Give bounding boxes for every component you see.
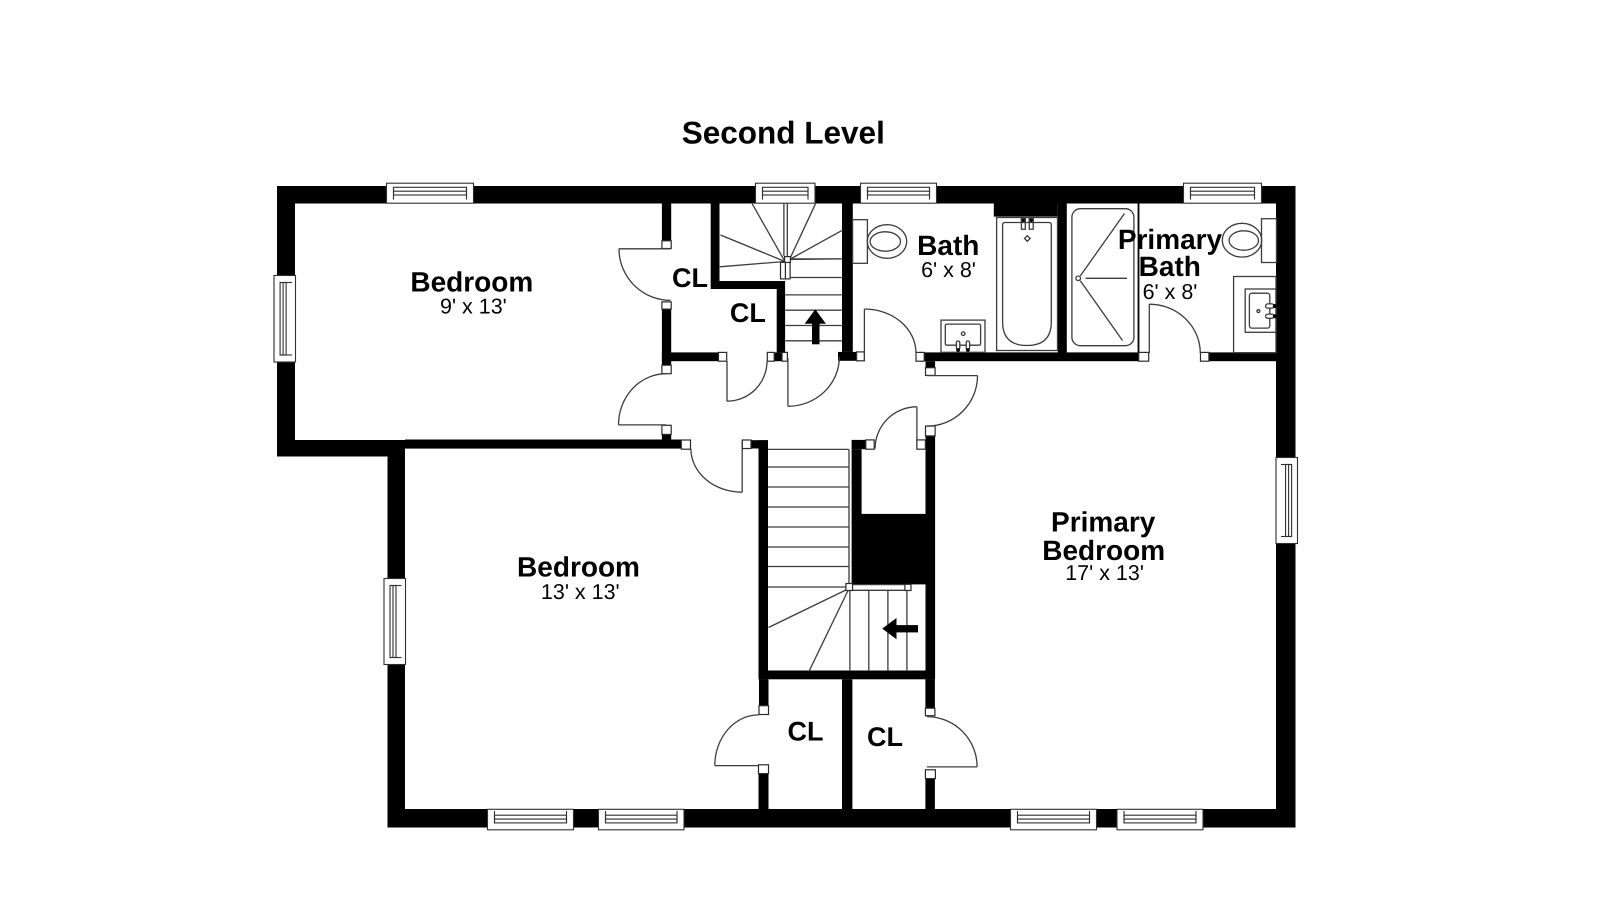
svg-text:CL: CL <box>867 722 903 752</box>
svg-text:6' x 8': 6' x 8' <box>921 258 976 282</box>
svg-text:9' x 13': 9' x 13' <box>440 295 507 319</box>
svg-text:Bath: Bath <box>1139 251 1201 282</box>
svg-text:CL: CL <box>788 717 824 747</box>
svg-text:Primary: Primary <box>1051 507 1156 538</box>
svg-text:6' x 8': 6' x 8' <box>1143 280 1198 304</box>
svg-text:13' x 13': 13' x 13' <box>541 580 620 604</box>
svg-text:CL: CL <box>672 263 708 293</box>
svg-text:CL: CL <box>730 298 766 328</box>
svg-text:Bath: Bath <box>917 230 979 261</box>
svg-text:Second Level: Second Level <box>682 115 885 151</box>
svg-text:17' x 13': 17' x 13' <box>1065 561 1144 585</box>
svg-text:Bedroom: Bedroom <box>517 552 640 583</box>
svg-text:Bedroom: Bedroom <box>410 267 533 298</box>
